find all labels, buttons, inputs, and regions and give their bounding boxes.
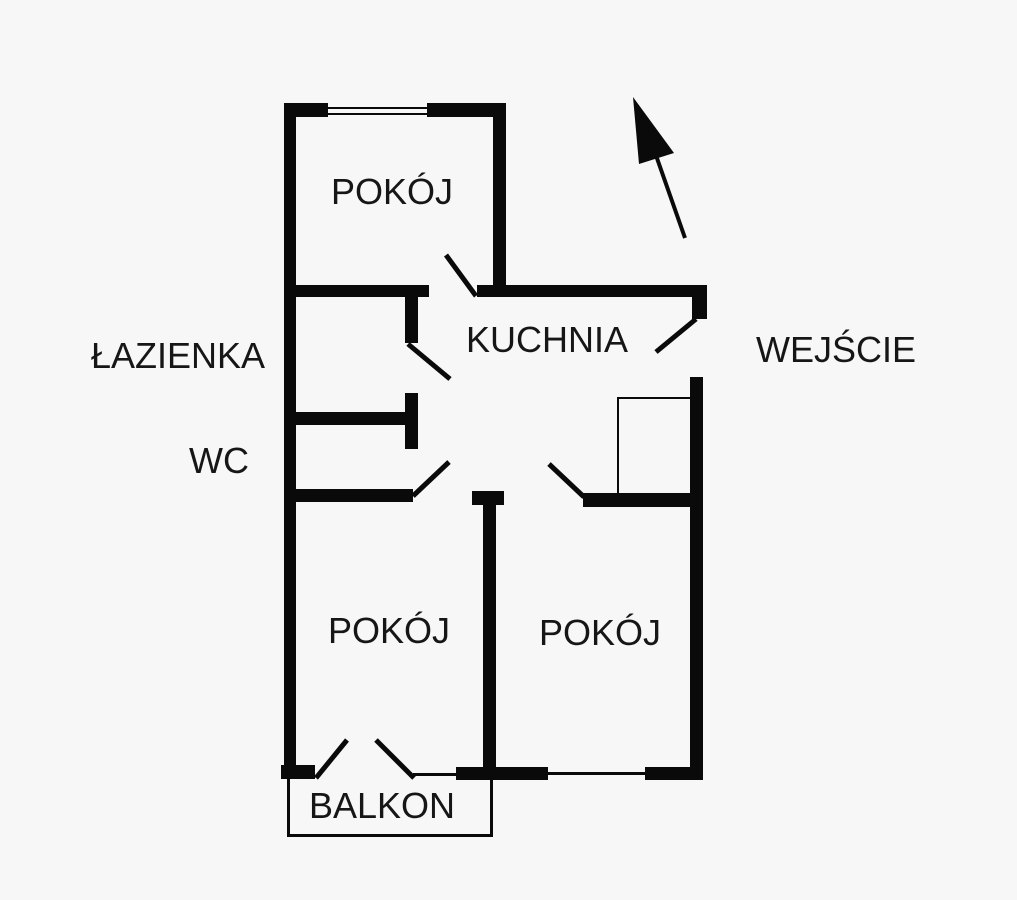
door-wc bbox=[413, 462, 449, 496]
door-top-room bbox=[446, 255, 476, 296]
label-balcony: BALKON bbox=[309, 785, 455, 827]
floor-plan: POKÓJ ŁAZIENKA WC KUCHNIA WEJŚCIE POKÓJ … bbox=[0, 0, 1017, 900]
door-bottom-right-room bbox=[549, 464, 584, 497]
label-room-top: POKÓJ bbox=[331, 171, 453, 213]
label-room-bottom-right: POKÓJ bbox=[539, 612, 661, 654]
label-wc: WC bbox=[189, 440, 249, 482]
label-kitchen: KUCHNIA bbox=[466, 319, 628, 361]
label-entrance: WEJŚCIE bbox=[756, 329, 916, 371]
door-entrance bbox=[656, 319, 696, 352]
label-room-bottom-left: POKÓJ bbox=[328, 610, 450, 652]
north-arrow-icon bbox=[633, 97, 685, 238]
north-arrow-head bbox=[633, 97, 674, 164]
door-balcony-right-leaf bbox=[376, 740, 414, 778]
doors-and-arrow-layer bbox=[0, 0, 1017, 900]
door-balcony-left-leaf bbox=[316, 740, 347, 778]
label-bathroom: ŁAZIENKA bbox=[91, 335, 265, 377]
door-bathroom bbox=[408, 344, 450, 379]
